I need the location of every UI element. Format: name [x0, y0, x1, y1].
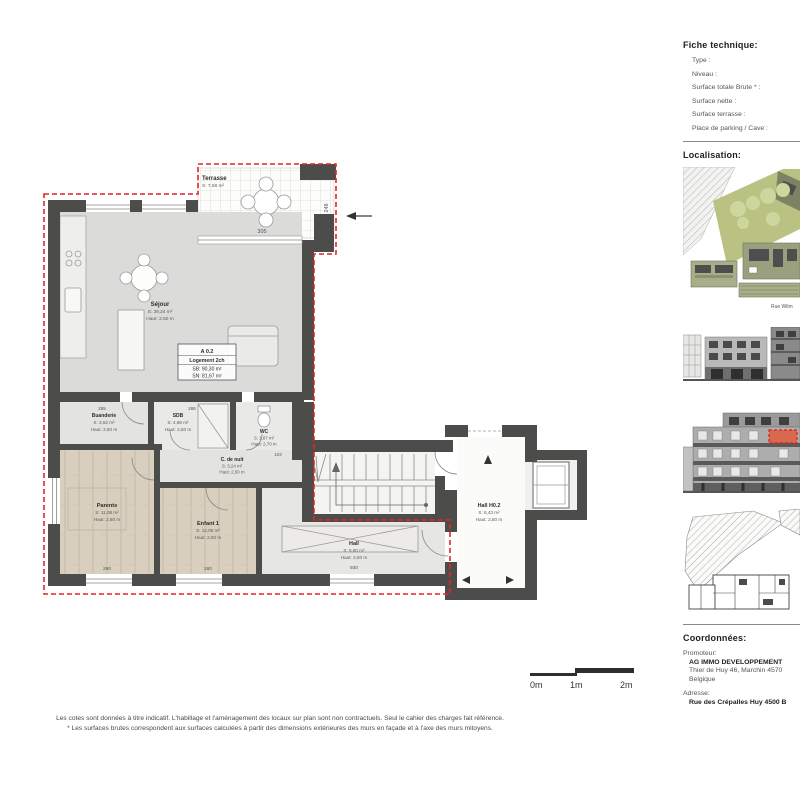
unit-sb: SB: 90,30 m² [192, 367, 222, 373]
dim-930: 930 [350, 565, 358, 571]
elevation-front-image [683, 327, 800, 389]
unit-highlight [769, 430, 797, 443]
sdb-height: Haut: 2,50 m [165, 427, 191, 432]
hall-h02-height: Haut: 2,50 m [476, 517, 502, 522]
wc-label: WC [260, 429, 269, 435]
dim-248: 248 [324, 203, 330, 212]
sdb-area: S: 4,86 m² [167, 420, 189, 425]
fiche-field-type: Type : [692, 57, 800, 64]
disclaimer-line2: * Les surfaces brutes correspondent aux … [0, 724, 560, 734]
chair [138, 254, 150, 266]
terrasse-label: Terrasse [202, 176, 227, 182]
enfant-height: Haut: 2,50 m [195, 535, 221, 540]
sejour-area: S: 39,24 m² [148, 309, 173, 315]
unit-sn: SN: 81,67 m² [192, 374, 222, 380]
buanderie-area: S: 3,52 m² [93, 420, 115, 425]
chair [120, 272, 132, 284]
dim-305: 305 [257, 229, 266, 235]
elevator [533, 462, 569, 508]
buanderie-label: Buanderie [92, 413, 117, 419]
fiche-field-surface-terrasse: Surface terrasse : [692, 111, 800, 118]
wc-height: Haut: 2,70 m [251, 442, 276, 447]
buanderie-height: Haut: 2,50 m [91, 427, 117, 432]
site-plan-image: Rue Wilm [683, 167, 800, 317]
hall-h02-area: S: 6,43 m² [478, 510, 500, 515]
fiche-field-parking: Place de parking / Cave : [692, 125, 800, 132]
entrance-arrow-icon [346, 212, 356, 220]
parents-label: Parents [97, 503, 118, 509]
elevation-highlight-image [683, 399, 800, 499]
terrace-chair [241, 195, 255, 209]
parents-area: S: 11,08 m² [95, 510, 119, 515]
dim-280: 280 [204, 566, 212, 572]
unit-code: A 0.2 [201, 349, 214, 355]
dim-290: 290 [103, 566, 111, 572]
adresse-value: Rue des Crépalles Huy 4500 B [689, 699, 800, 706]
hall-h02-label: Hall H0.2 [478, 503, 501, 509]
chair [156, 272, 168, 284]
sdb-label: SDB [173, 413, 184, 419]
localisation-title: Localisation: [683, 150, 800, 160]
fiche-field-surface-nette: Surface nette : [692, 98, 800, 105]
dim-286: 286 [188, 406, 196, 411]
scale-2m: 2m [620, 680, 633, 690]
parents-height: Haut: 2,50 m [94, 517, 120, 522]
promoteur-address-line2: Belgique [689, 676, 800, 683]
sejour-height: Haut: 2,50 m [146, 316, 173, 322]
divider [683, 141, 800, 142]
kitchen-counter [60, 216, 86, 358]
toilet-tank [258, 406, 270, 412]
disclaimer: Les cotes sont données à titre indicatif… [0, 714, 560, 734]
kitchen-sink [65, 288, 81, 312]
floor-plan-drawing: A 0.2 Logement 2ch SB: 90,30 m² SN: 81,6… [30, 160, 650, 700]
hall-area: S: 5,80 m² [343, 548, 365, 553]
scale-0m: 0m [530, 680, 543, 690]
c-de-nuit-height: Haut: 2,50 m [219, 470, 244, 475]
terrace-chair [277, 195, 291, 209]
promoteur-address-line1: Thier de Huy 46, Marchin 4570 [689, 667, 800, 674]
info-panel: Fiche technique: Type : Niveau : Surface… [683, 40, 800, 707]
enfant-area: S: 12,06 m² [196, 528, 220, 533]
disclaimer-line1: Les cotes sont données à titre indicatif… [0, 714, 560, 724]
dining-table [131, 265, 157, 291]
unit-type: Logement 2ch [189, 358, 224, 364]
fiche-technique-title: Fiche technique: [683, 40, 800, 50]
kitchen-island [118, 310, 144, 370]
scale-bar: 0m 1m 2m [524, 654, 640, 694]
terrasse-area: S: 7,58 m² [202, 183, 225, 189]
c-de-nuit-area: S: 3,24 m² [222, 464, 243, 469]
fiche-field-niveau: Niveau : [692, 71, 800, 78]
fiche-field-surface-brute: Surface totale Brute * : [692, 84, 800, 91]
key-plan-image [683, 509, 800, 614]
promoteur-label: Promoteur: [683, 650, 800, 657]
c-de-nuit-label: C. de nuit [221, 457, 244, 463]
floorplan-sheet: A 0.2 Logement 2ch SB: 90,30 m² SN: 81,6… [0, 0, 800, 800]
terrace-table [253, 189, 279, 215]
terrace-chair [259, 177, 273, 191]
enfant-label: Enfant 1 [197, 521, 219, 527]
hall-height: Haut: 2,50 m [341, 555, 367, 560]
hall-label: Hall [349, 541, 359, 547]
coordonnees-title: Coordonnées: [683, 633, 800, 643]
dim-255: 255 [98, 406, 106, 411]
dim-103: 103 [274, 452, 282, 457]
adresse-label: Adresse: [683, 690, 800, 697]
wc-area: S: 1,87 m² [254, 436, 275, 441]
toilet [258, 413, 270, 427]
terrace-chair [259, 213, 273, 227]
sejour-label: Séjour [151, 302, 170, 308]
promoteur-name: AG IMMO DEVELOPPEMENT [689, 659, 800, 666]
divider [683, 624, 800, 625]
street-label: Rue Wilm [771, 304, 793, 310]
scale-1m: 1m [570, 680, 583, 690]
unit-label-box: A 0.2 Logement 2ch SB: 90,30 m² SN: 81,6… [178, 344, 236, 380]
chair [138, 290, 150, 302]
